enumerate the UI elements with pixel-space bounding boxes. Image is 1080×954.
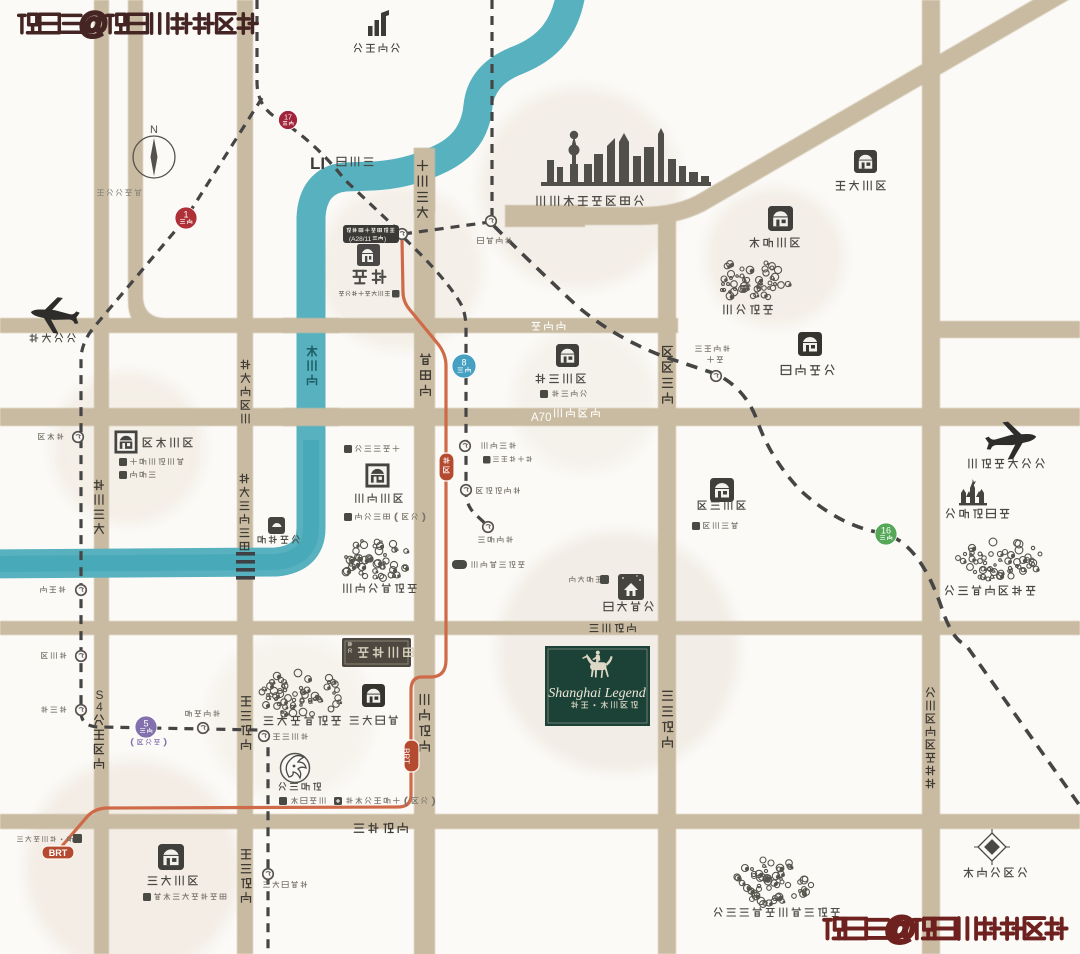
svg-text:(A28/11: (A28/11 — [349, 236, 372, 243]
svg-text:BRT: BRT — [49, 848, 68, 858]
svg-text:): ) — [423, 511, 426, 521]
svg-text:5: 5 — [143, 718, 148, 728]
svg-text:17: 17 — [284, 115, 292, 122]
svg-text:A70: A70 — [531, 412, 551, 424]
svg-text:BRT: BRT — [402, 748, 411, 764]
svg-text:N: N — [150, 124, 158, 136]
svg-text:16: 16 — [881, 525, 891, 535]
svg-text:): ) — [384, 236, 386, 243]
svg-text:@: @ — [885, 910, 916, 945]
svg-text:8: 8 — [461, 357, 466, 367]
svg-text:LI: LI — [310, 154, 325, 173]
svg-text:4: 4 — [96, 700, 103, 714]
svg-text:@: @ — [79, 8, 108, 40]
svg-text:(: ( — [394, 511, 397, 521]
svg-text:): ) — [432, 795, 435, 805]
svg-text:1: 1 — [183, 209, 188, 219]
svg-text:Shanghai Legend: Shanghai Legend — [548, 686, 647, 701]
svg-text:(: ( — [404, 795, 407, 805]
svg-text:(: ( — [131, 738, 134, 747]
svg-text:): ) — [164, 738, 167, 747]
